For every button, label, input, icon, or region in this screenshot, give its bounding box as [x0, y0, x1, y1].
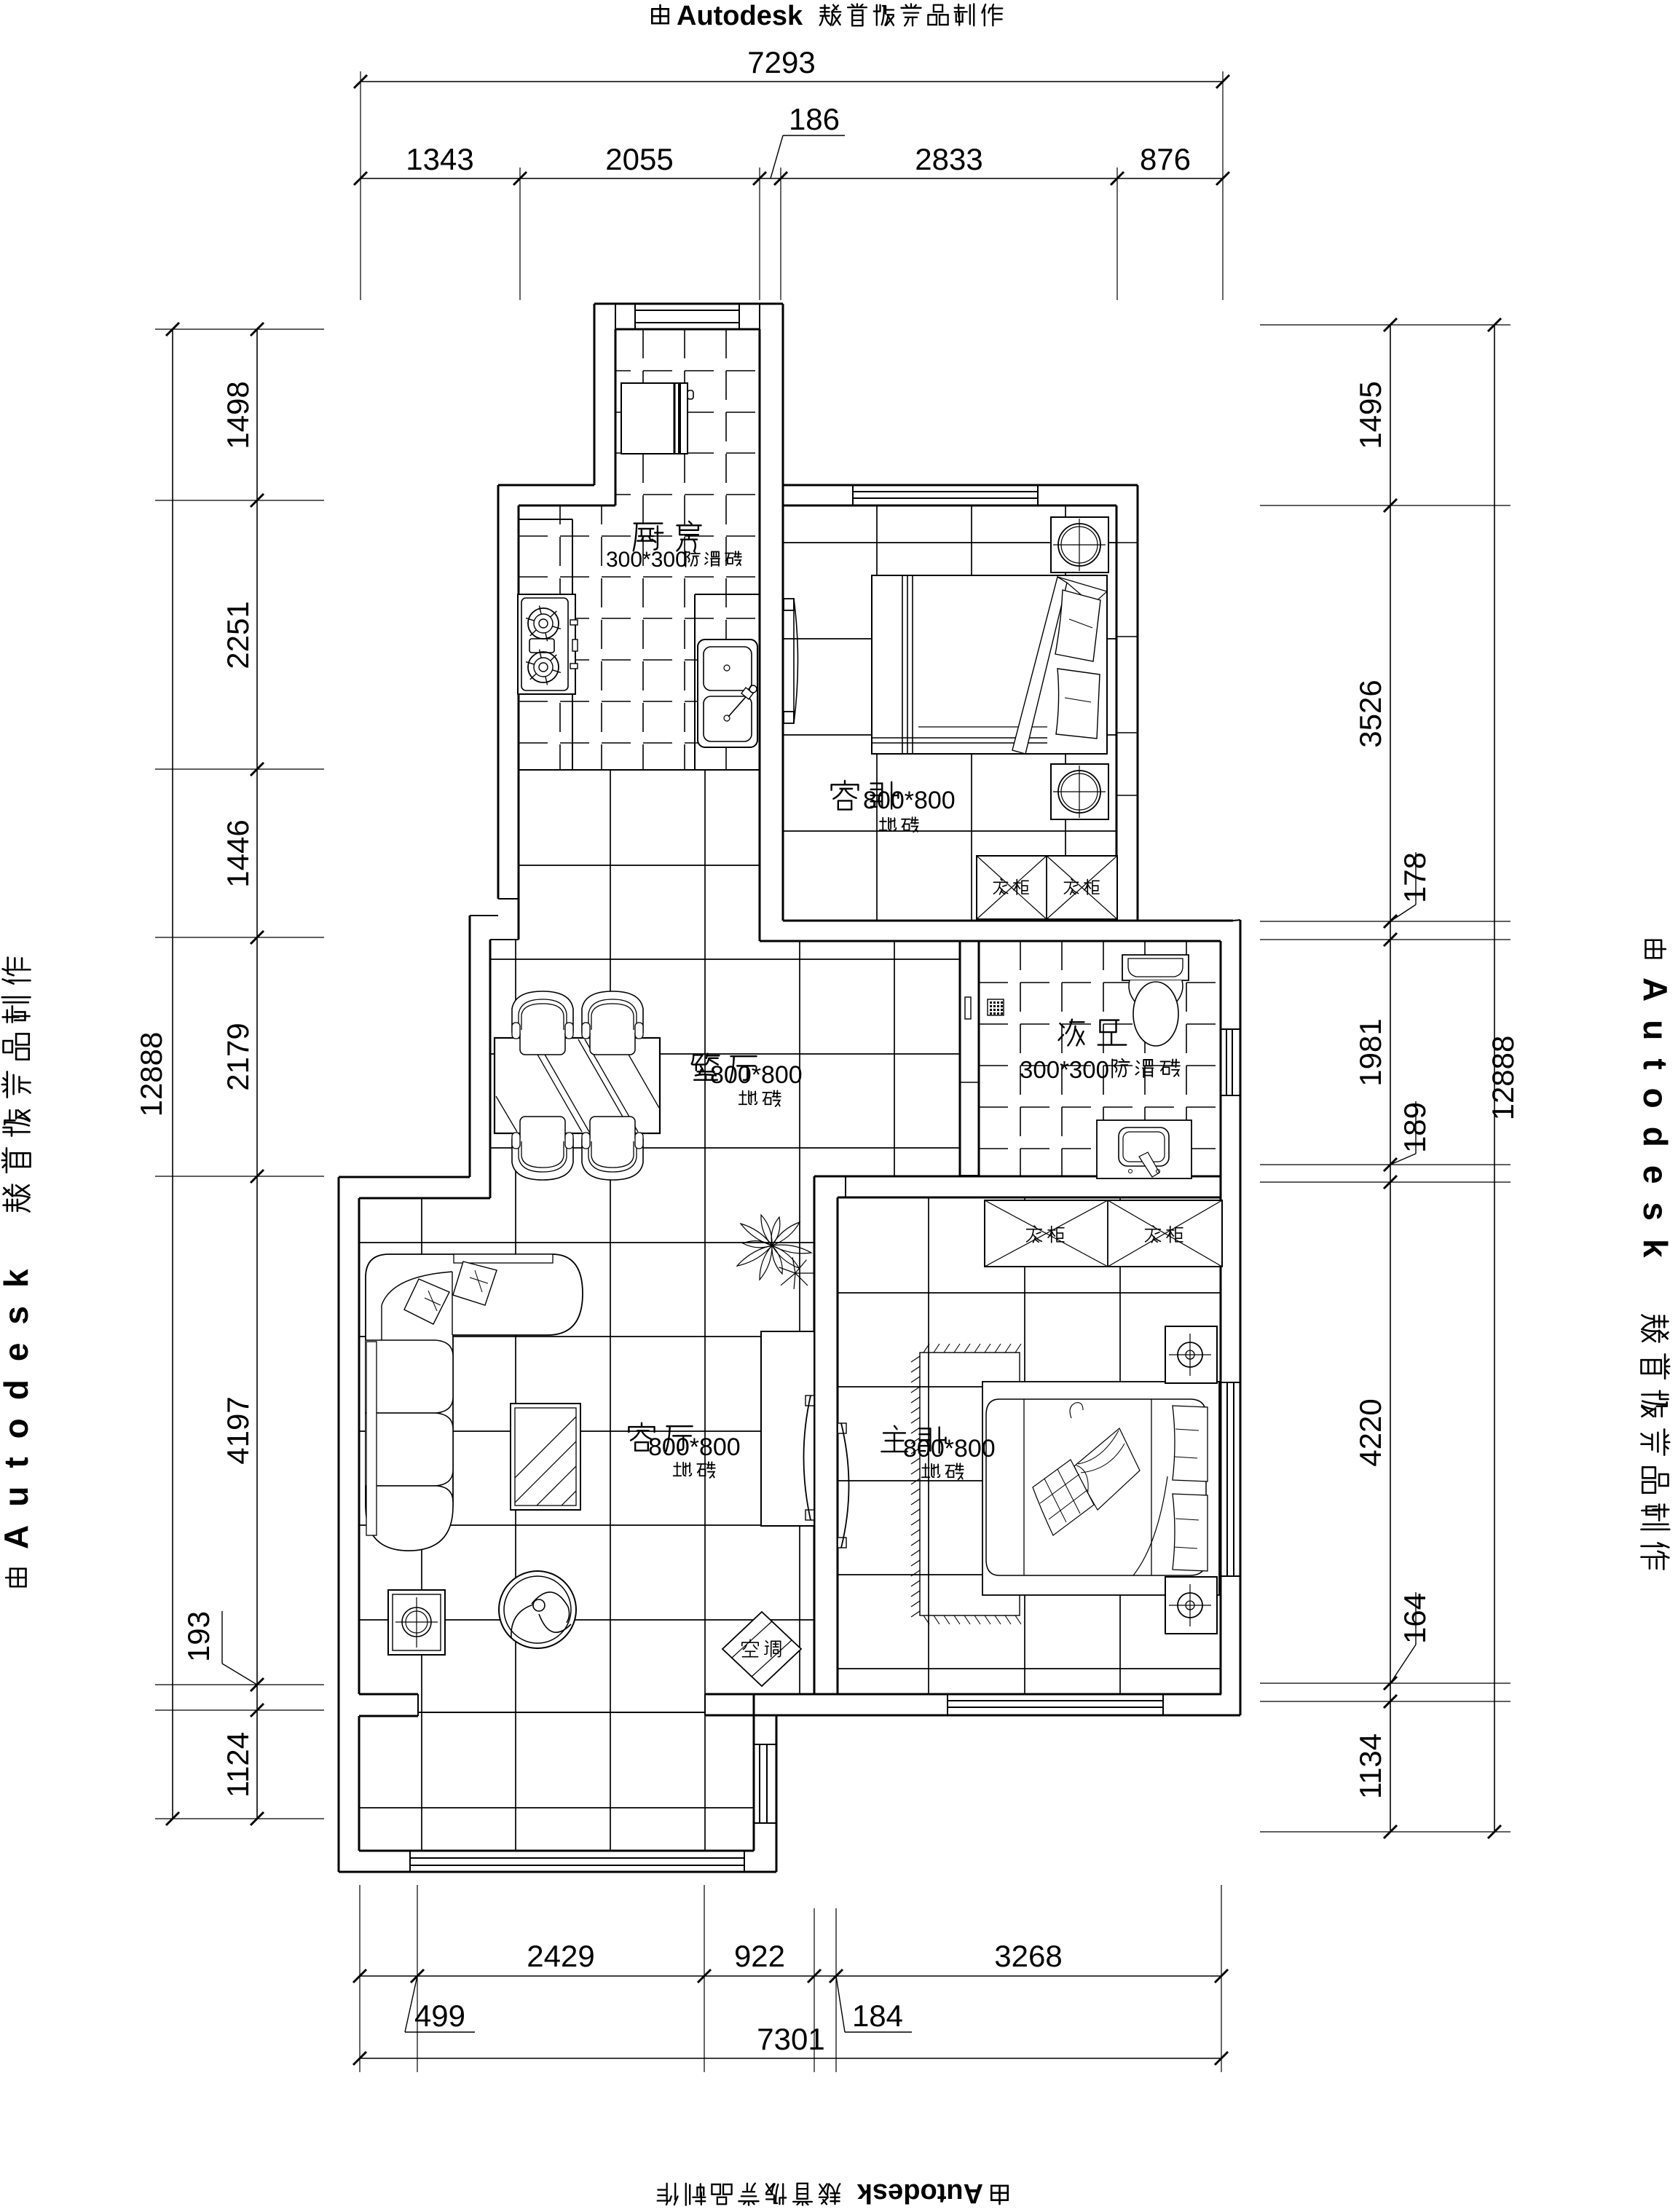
svg-text:499: 499	[414, 1999, 465, 2033]
svg-text:4220: 4220	[1353, 1398, 1387, 1466]
svg-text:7293: 7293	[747, 45, 815, 79]
svg-text:2179: 2179	[221, 1023, 255, 1090]
svg-text:800*800: 800*800	[710, 1061, 803, 1089]
svg-text:800*800: 800*800	[903, 1435, 996, 1463]
svg-text:Autodesk: Autodesk	[1636, 977, 1674, 1276]
svg-text:2251: 2251	[221, 601, 255, 669]
svg-text:7301: 7301	[757, 2022, 824, 2056]
svg-text:178: 178	[1398, 852, 1432, 903]
svg-text:186: 186	[789, 102, 840, 136]
svg-text:Autodesk: Autodesk	[856, 2178, 983, 2208]
svg-text:2833: 2833	[915, 142, 982, 176]
svg-text:12888: 12888	[134, 1032, 168, 1117]
svg-text:300*300: 300*300	[1020, 1056, 1109, 1083]
svg-text:300*300: 300*300	[606, 548, 688, 572]
svg-text:800*800: 800*800	[863, 787, 956, 814]
svg-text:1446: 1446	[221, 819, 255, 887]
svg-text:800*800: 800*800	[648, 1433, 741, 1461]
svg-text:876: 876	[1140, 142, 1191, 176]
svg-text:1134: 1134	[1353, 1733, 1387, 1799]
svg-text:922: 922	[734, 1939, 785, 1973]
svg-text:1343: 1343	[406, 142, 473, 176]
svg-text:Autodesk: Autodesk	[677, 1, 803, 31]
svg-text:3268: 3268	[994, 1939, 1062, 1973]
svg-text:164: 164	[1398, 1593, 1432, 1644]
svg-text:2055: 2055	[605, 142, 673, 176]
svg-text:1498: 1498	[221, 381, 255, 449]
svg-text:184: 184	[852, 1999, 903, 2033]
svg-text:4197: 4197	[221, 1396, 255, 1464]
svg-text:2429: 2429	[527, 1939, 594, 1973]
svg-text:1124: 1124	[221, 1732, 255, 1798]
svg-text:12888: 12888	[1486, 1036, 1520, 1121]
svg-text:3526: 3526	[1353, 680, 1387, 747]
svg-text:Autodesk: Autodesk	[0, 1251, 35, 1549]
svg-text:1495: 1495	[1353, 381, 1387, 449]
svg-text:189: 189	[1398, 1102, 1432, 1153]
svg-text:193: 193	[181, 1611, 216, 1662]
svg-text:1981: 1981	[1353, 1018, 1387, 1086]
